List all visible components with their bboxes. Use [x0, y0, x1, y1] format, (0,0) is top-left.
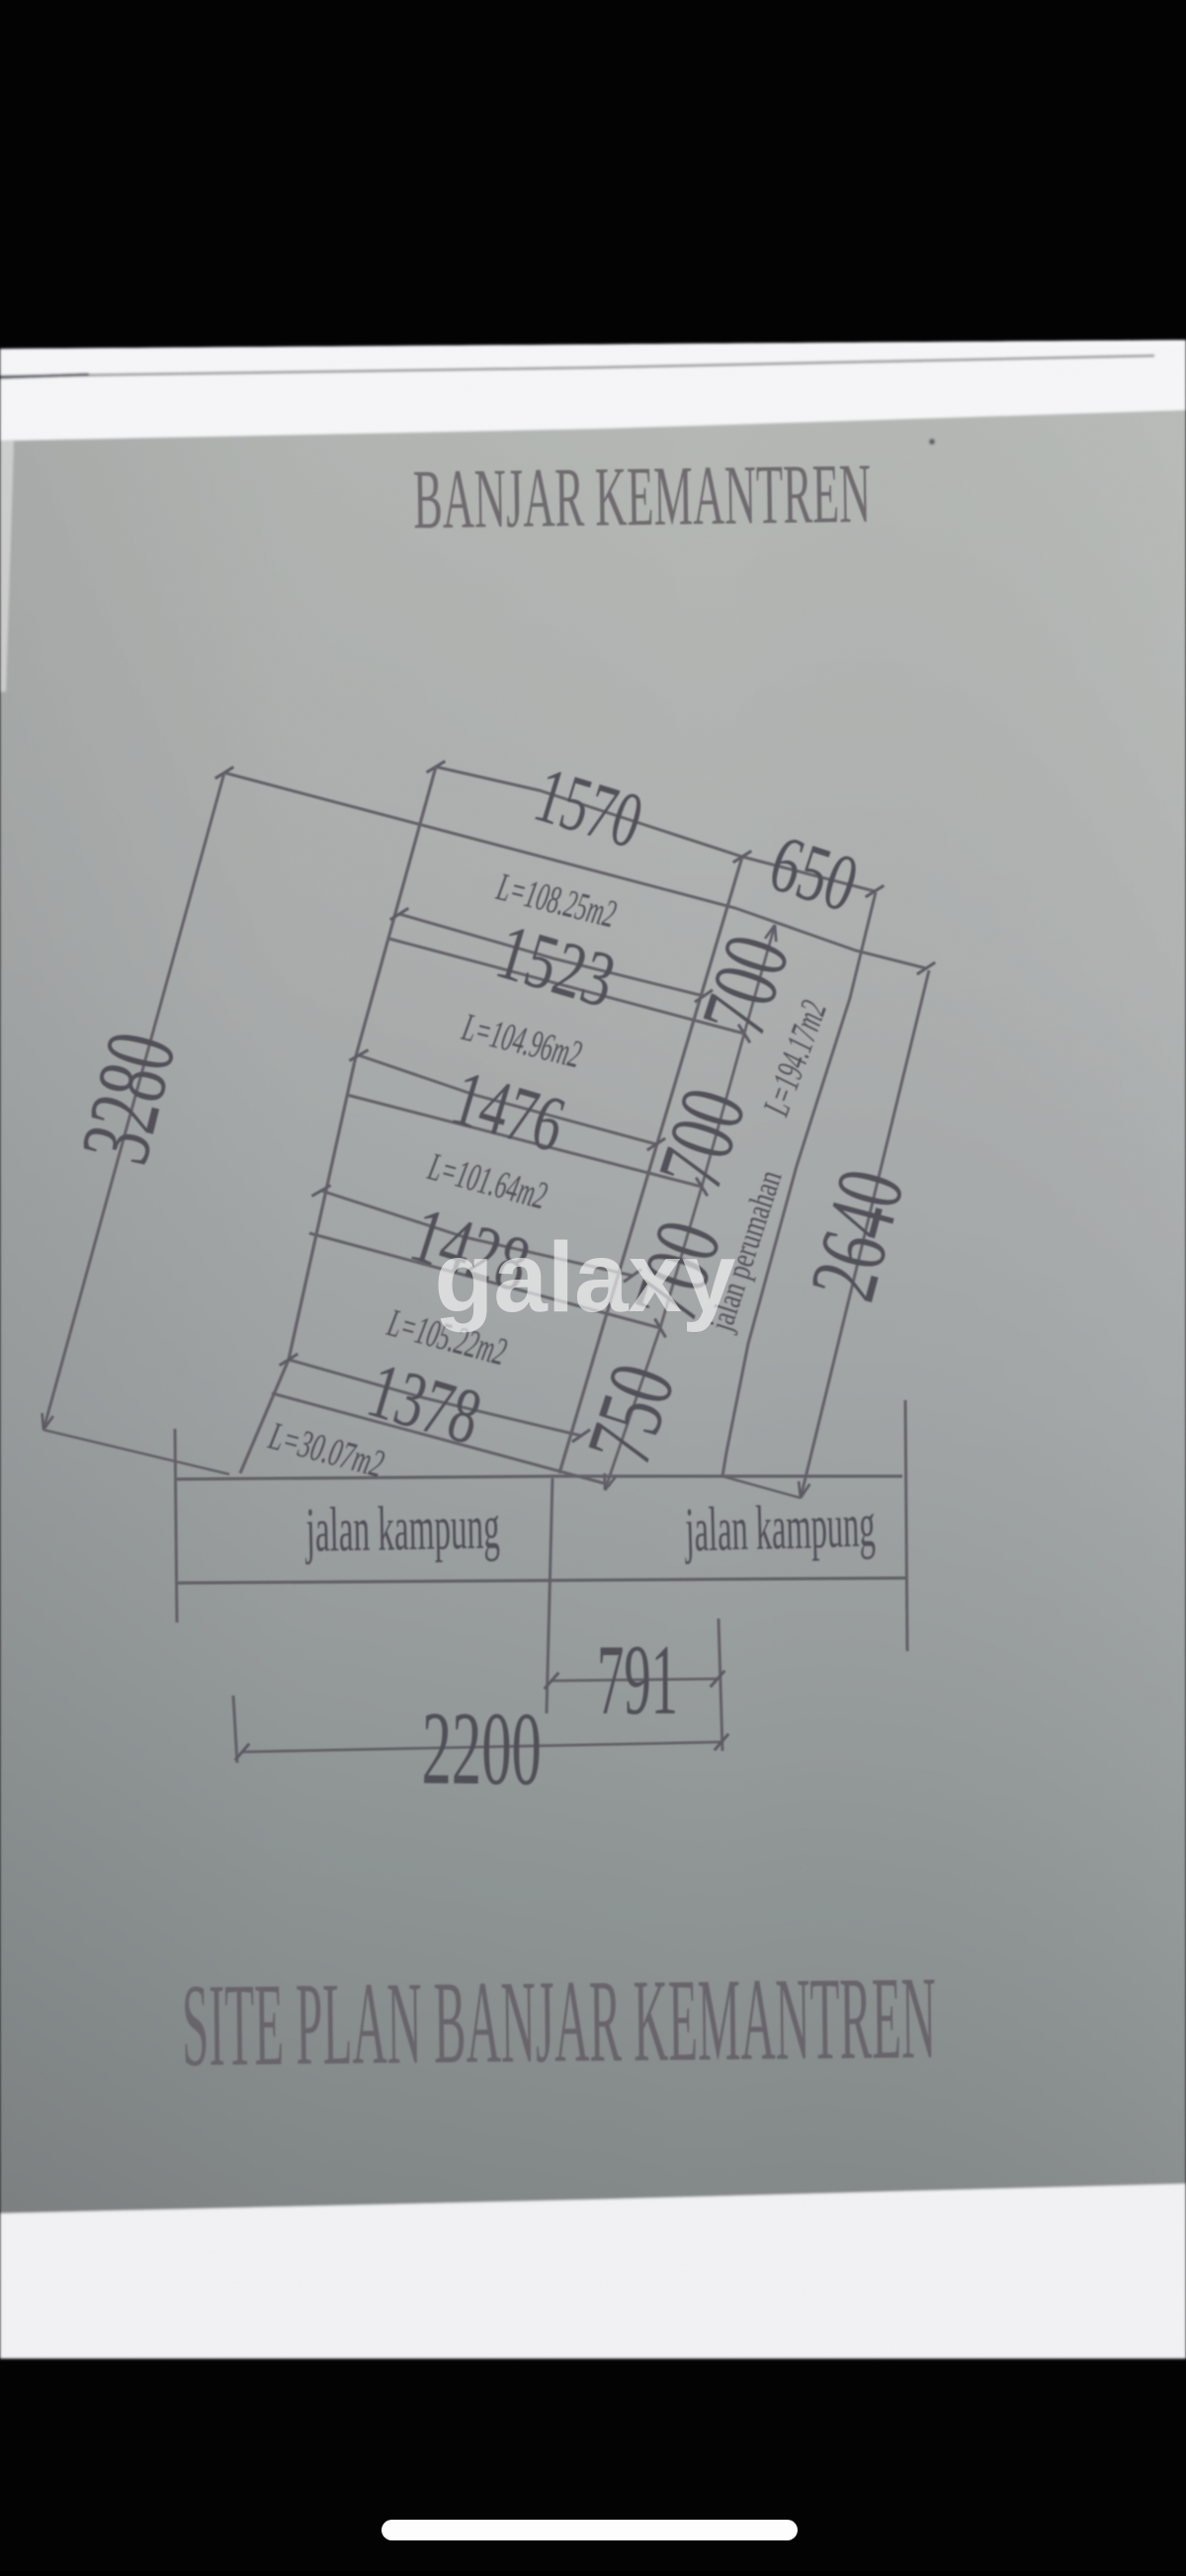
svg-text:galaxy: galaxy: [435, 1222, 736, 1333]
